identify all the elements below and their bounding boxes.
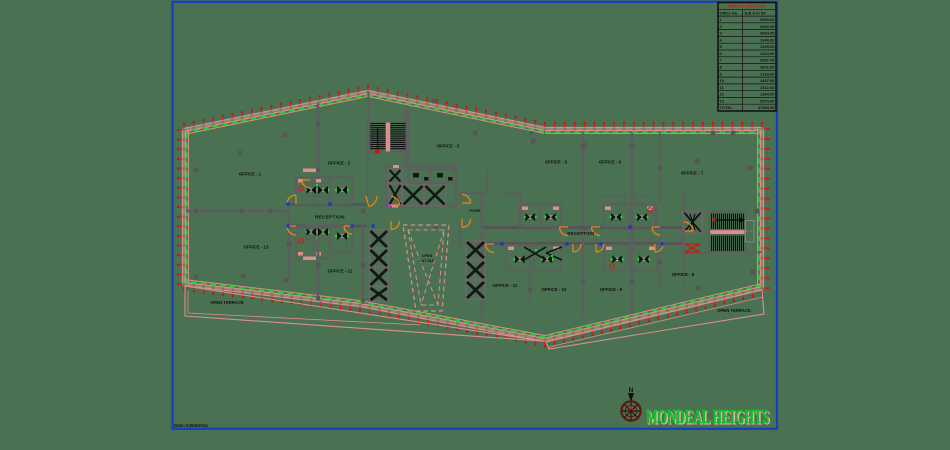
svg-text:1497.00: 1497.00 bbox=[760, 78, 775, 83]
svg-text:OFFICE - 9: OFFICE - 9 bbox=[600, 287, 623, 292]
svg-text:1611.00: 1611.00 bbox=[760, 85, 775, 90]
svg-text:1495.00: 1495.00 bbox=[760, 44, 775, 49]
svg-text:S.B.A in SF: S.B.A in SF bbox=[745, 10, 767, 15]
svg-text:OFFICE - 12: OFFICE - 12 bbox=[328, 269, 353, 274]
svg-text:OFFICE - 2: OFFICE - 2 bbox=[328, 161, 351, 166]
svg-text:1940.00: 1940.00 bbox=[760, 37, 775, 42]
svg-text:3064.00: 3064.00 bbox=[760, 31, 775, 36]
svg-text:RECEPTION: RECEPTION bbox=[315, 214, 345, 219]
svg-text:OFFICE - 8: OFFICE - 8 bbox=[672, 272, 695, 277]
svg-text:RECEPTION: RECEPTION bbox=[567, 231, 594, 236]
svg-text:FOYER: FOYER bbox=[470, 209, 482, 213]
svg-text:Block A 5th Floor: Block A 5th Floor bbox=[728, 4, 766, 9]
svg-text:Date:-04/04/2014: Date:-04/04/2014 bbox=[174, 423, 208, 428]
svg-text:OFFICE - 5: OFFICE - 5 bbox=[545, 160, 568, 165]
svg-text:OFFICE - 7: OFFICE - 7 bbox=[681, 171, 704, 176]
svg-text:OFFICE - 11: OFFICE - 11 bbox=[493, 283, 518, 288]
svg-text:1423.00: 1423.00 bbox=[760, 51, 775, 56]
svg-text:10: 10 bbox=[720, 78, 725, 83]
svg-text:MONDEAL HEIGHTS: MONDEAL HEIGHTS bbox=[646, 406, 769, 428]
svg-text:N: N bbox=[629, 387, 634, 394]
svg-text:1318.00: 1318.00 bbox=[760, 71, 775, 76]
svg-text:13: 13 bbox=[720, 98, 725, 103]
svg-text:3597.00: 3597.00 bbox=[760, 58, 775, 63]
svg-text:OFFICE - 3: OFFICE - 3 bbox=[437, 144, 460, 149]
svg-text:1364.00: 1364.00 bbox=[760, 92, 775, 97]
svg-text:3573.00: 3573.00 bbox=[760, 98, 775, 103]
svg-text:CUT OUT: CUT OUT bbox=[419, 259, 436, 263]
svg-text:OFFICE - 10: OFFICE - 10 bbox=[542, 287, 567, 292]
svg-text:1641.00: 1641.00 bbox=[760, 65, 775, 70]
svg-text:OFFICE - 6: OFFICE - 6 bbox=[599, 160, 622, 165]
svg-text:OFFICE - 1: OFFICE - 1 bbox=[239, 172, 262, 177]
svg-text:37583.00: 37583.00 bbox=[758, 105, 775, 110]
svg-text:OFFICE - 13: OFFICE - 13 bbox=[244, 245, 269, 250]
svg-text:TOTAL: TOTAL bbox=[720, 105, 734, 110]
svg-text:12: 12 bbox=[720, 92, 725, 97]
svg-text:OPEN: OPEN bbox=[422, 254, 433, 258]
svg-text:3000.00: 3000.00 bbox=[760, 17, 775, 22]
svg-text:OPEN TERRACE: OPEN TERRACE bbox=[717, 308, 750, 313]
svg-text:Office No.: Office No. bbox=[720, 10, 739, 15]
svg-text:1060.00: 1060.00 bbox=[760, 24, 775, 29]
svg-text:OPEN TERRACE: OPEN TERRACE bbox=[210, 300, 243, 305]
